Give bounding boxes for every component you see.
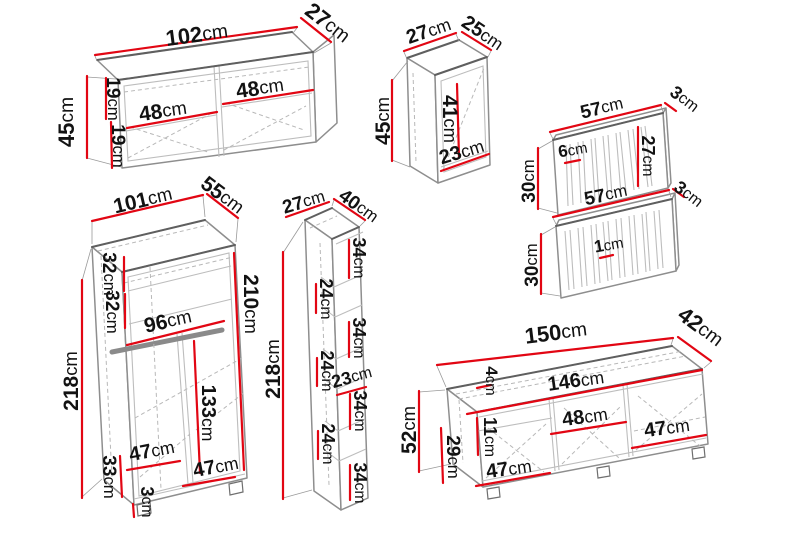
dim-tall-shelf-section-3: 34cm xyxy=(349,317,369,358)
dim-wardrobe-bottom-compartment: 33cm xyxy=(98,455,119,498)
tv-stand-foot-middle xyxy=(597,466,610,478)
dim-wall-cabinet-upper-shelf: 19cm xyxy=(102,77,123,120)
dim-wall-panel-top-height: 30cm xyxy=(519,159,540,202)
dim-tall-shelf-section-5: 34cm xyxy=(350,390,370,431)
dim-tall-shelf-section-2: 24cm xyxy=(316,278,336,319)
diagram-canvas: 102cm 27cm 45cm 19cm 19cm 48cm 48cm 27cm… xyxy=(0,0,800,533)
wardrobe-foot-right xyxy=(229,481,243,495)
small-cabinet-left-face xyxy=(407,58,438,183)
dim-small-cabinet-height: 45cm xyxy=(372,97,395,145)
furniture-dimension-diagram: 102cm 27cm 45cm 19cm 19cm 48cm 48cm 27cm… xyxy=(0,0,800,533)
dim-tall-shelf-section-7: 34cm xyxy=(350,462,370,503)
dim-tv-stand-drawer-height: 11cm xyxy=(480,417,500,457)
dim-small-cabinet-inner-height: 41cm xyxy=(438,95,461,143)
dim-wardrobe-height: 218cm xyxy=(60,351,83,411)
dim-tv-stand-top-thickness: 4cm xyxy=(482,366,501,395)
dim-wardrobe-lower-shelf: 32cm xyxy=(101,290,122,333)
dim-tall-shelf-section-1: 34cm xyxy=(349,237,369,278)
dim-tall-shelf-section-6: 24cm xyxy=(318,423,338,464)
dim-wardrobe-hanging-height: 133cm xyxy=(197,385,219,442)
dim-tall-shelf-height: 218cm xyxy=(262,339,285,399)
dim-wall-cabinet-lower-shelf: 19cm xyxy=(107,124,128,167)
dim-wardrobe-inner-height: 210cm xyxy=(239,274,262,334)
dim-wall-cabinet-height: 45cm xyxy=(54,97,79,147)
dim-wardrobe-plinth: 3cm xyxy=(137,486,157,517)
dim-wall-panel-top-inner-height: 27cm xyxy=(638,135,658,176)
dim-wardrobe-upper-shelf: 32cm xyxy=(98,252,119,295)
dim-wall-panel-bottom-height: 30cm xyxy=(522,243,543,286)
tv-stand-foot-right xyxy=(692,447,705,459)
tv-stand-foot-left xyxy=(487,487,500,499)
dim-tv-stand-inner-height: 29cm xyxy=(442,435,463,478)
dim-tv-stand-height: 52cm xyxy=(398,406,421,454)
